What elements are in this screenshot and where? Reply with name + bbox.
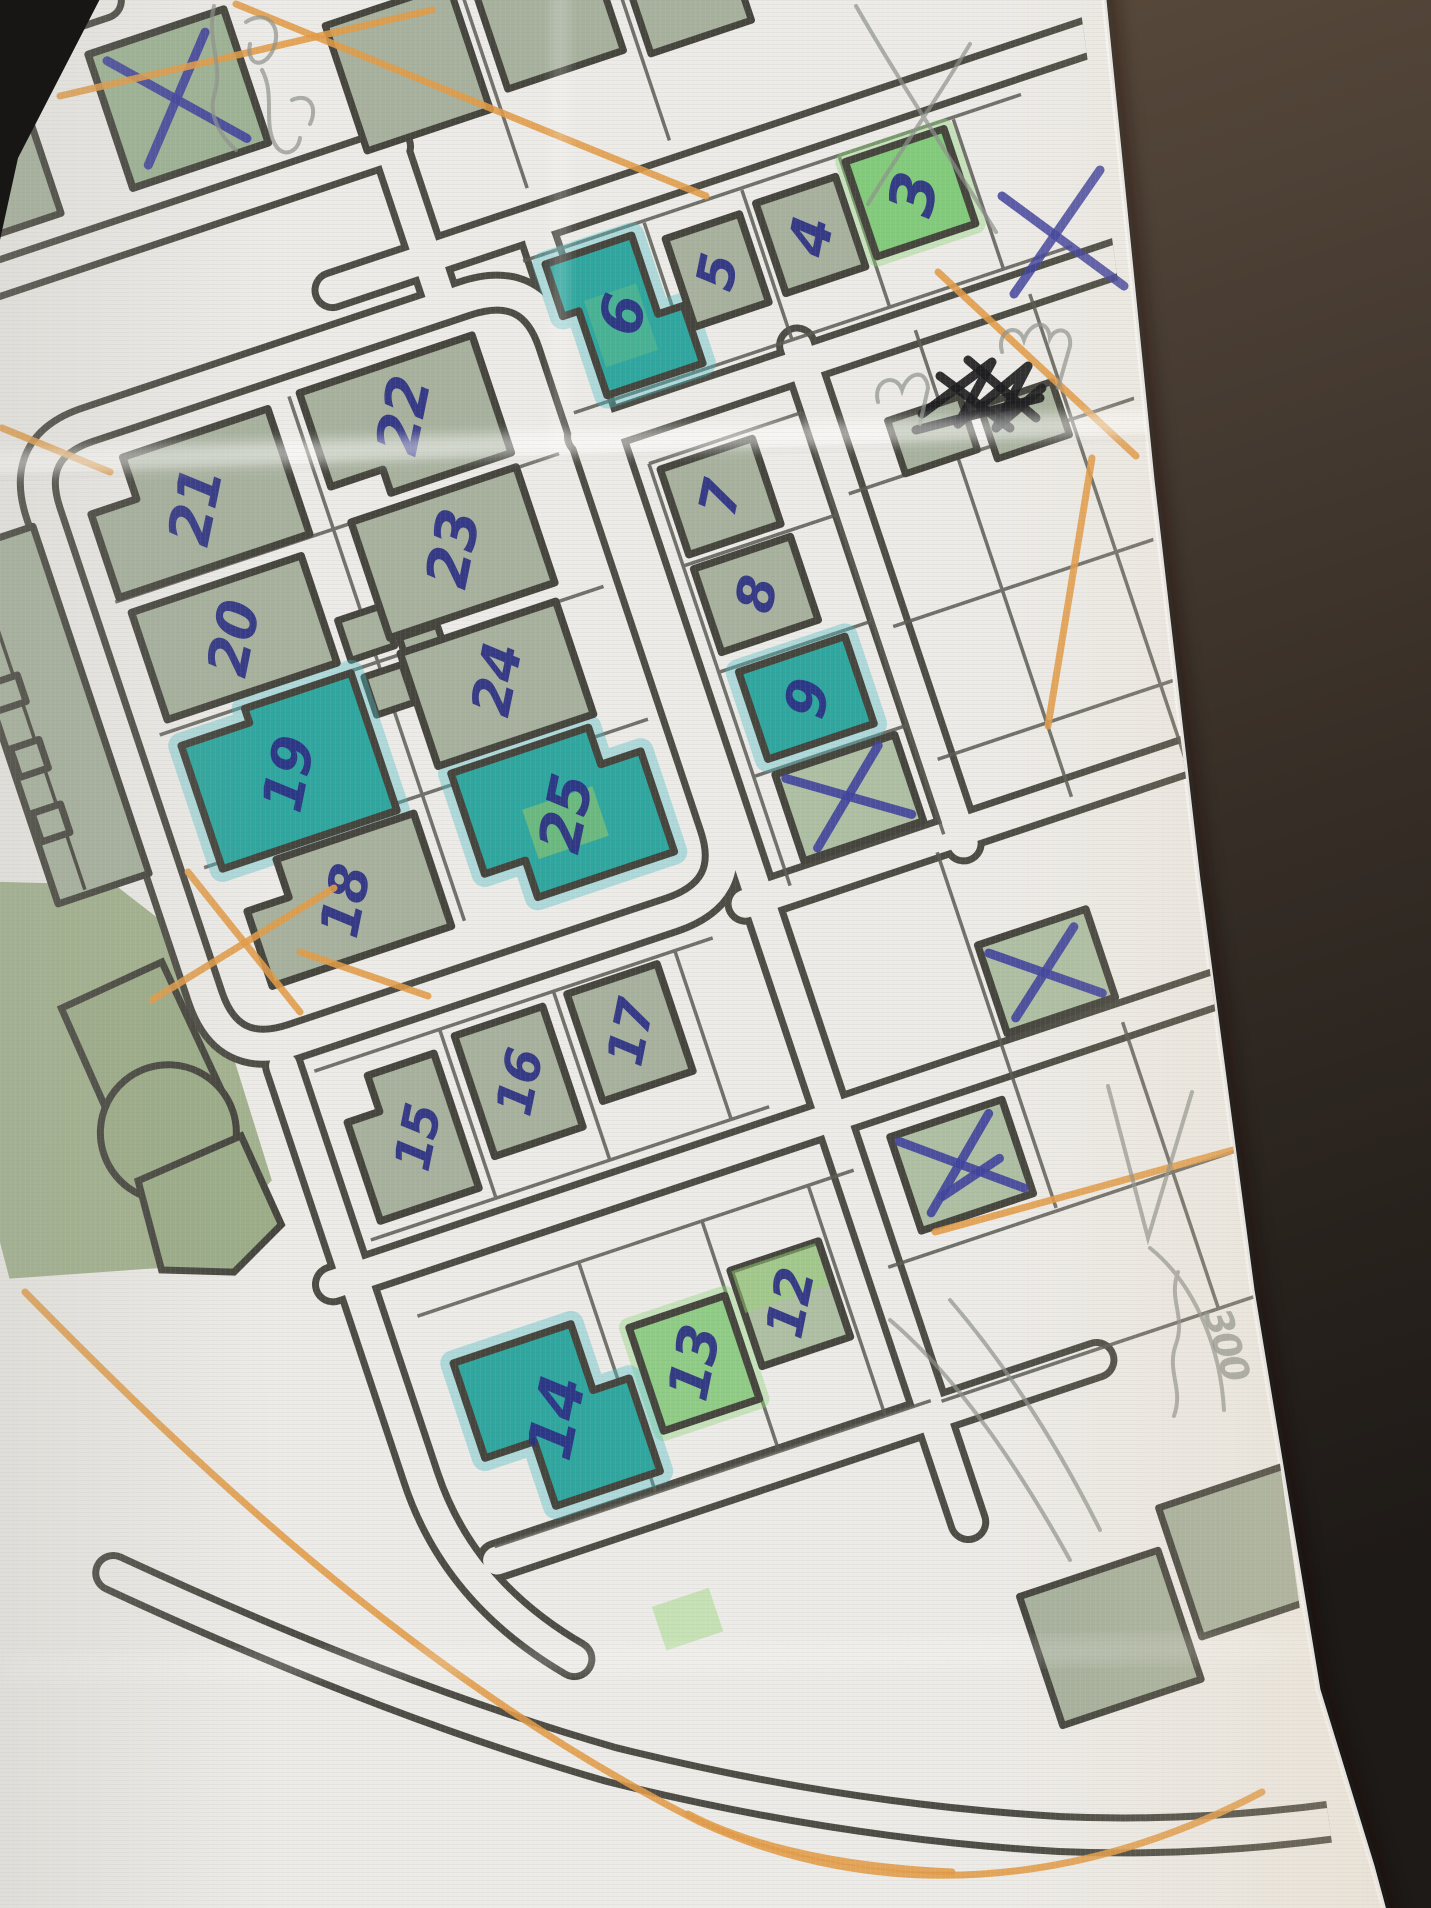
photo-of-annotated-paper-map: 34567892122202319241825171615121314 300 — [0, 0, 1431, 1908]
map-photo-canvas: 34567892122202319241825171615121314 300 — [0, 0, 1431, 1908]
